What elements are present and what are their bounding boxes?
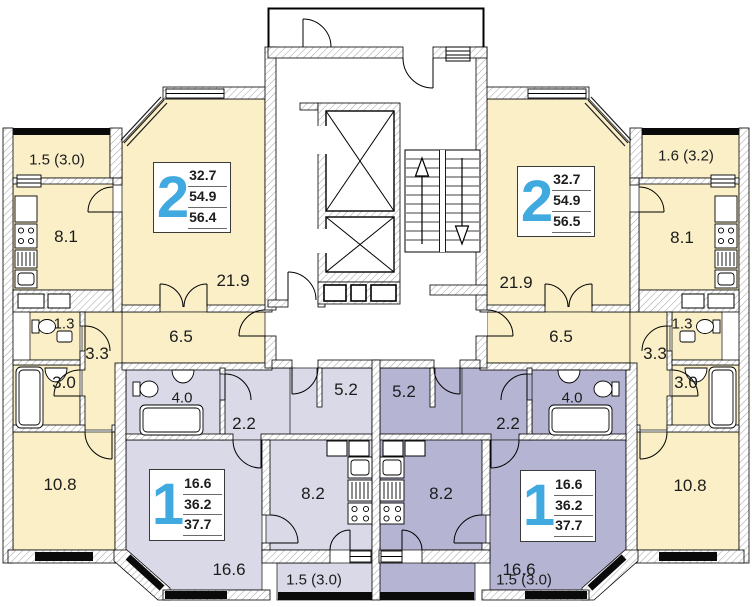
living-area-value: 16.6 xyxy=(183,474,222,495)
window-balcony-bottom-left xyxy=(278,592,372,600)
room-label-hall-1-right: 2.2 xyxy=(496,414,520,434)
room-label-kitchen-1-left: 8.2 xyxy=(301,484,325,504)
room-label-hall-1-left: 2.2 xyxy=(232,414,256,434)
room-label-living-1-left: 16.6 xyxy=(212,560,245,580)
apartment-areas: 16.6 36.2 37.7 xyxy=(183,474,222,537)
stove-icon xyxy=(715,224,737,248)
living-area-value: 16.6 xyxy=(554,475,593,496)
toilet-icon-wc-left xyxy=(32,320,56,334)
window-kitchen-1-right xyxy=(381,551,402,562)
kitchen-counter-1-left xyxy=(348,457,372,524)
apartment-number: 2 xyxy=(521,176,550,227)
total-area-value: 56.4 xyxy=(188,208,227,229)
usable-area-value: 54.9 xyxy=(552,191,591,212)
room-label-balcony-bottom-right: 1.5 (3.0) xyxy=(496,572,552,589)
apartment-areas: 32.7 54.9 56.5 xyxy=(552,170,591,233)
apartment-stamp-1-right: 1 16.6 36.2 37.7 xyxy=(520,470,596,542)
usable-area-value: 36.2 xyxy=(554,496,593,517)
room-label-bathroom-right: 3.0 xyxy=(674,373,698,393)
sink-icon-wc-right xyxy=(680,331,695,342)
total-area-value: 37.7 xyxy=(554,516,593,537)
kitchen-counter-1-right xyxy=(380,457,404,524)
elevator-door-2 xyxy=(317,229,327,253)
stove-icon xyxy=(15,224,37,248)
room-label-wc-right: 1.3 xyxy=(672,316,693,333)
window-bedroom-right xyxy=(659,552,717,561)
living-area-value: 32.7 xyxy=(552,170,591,191)
toilet-icon-wc-right xyxy=(697,320,721,334)
room-hallway-left xyxy=(122,312,265,363)
total-area-value: 56.5 xyxy=(552,212,591,233)
room-label-bedroom-left: 10.8 xyxy=(43,475,76,495)
stove-icon xyxy=(380,503,404,524)
room-label-kitchen-1-right: 8.2 xyxy=(429,484,453,504)
room-label-balcony-bottom-left: 1.5 (3.0) xyxy=(286,572,342,589)
window-balcony-top-left xyxy=(13,128,110,135)
bathtub-icon-right xyxy=(709,367,736,428)
elevator-door-1 xyxy=(317,126,327,154)
floor-plan: 1.5 (3.0) 8.1 21.9 6.5 1.3 3.3 3.0 10.8 … xyxy=(0,0,752,607)
living-area-value: 32.7 xyxy=(188,166,227,187)
apartment-areas: 16.6 36.2 37.7 xyxy=(554,475,593,538)
room-label-kitchen-right: 8.1 xyxy=(670,228,694,248)
window-living-1-left xyxy=(165,591,227,599)
apartment-number: 1 xyxy=(152,479,181,530)
room-label-bathroom-1-right: 4.0 xyxy=(562,390,583,407)
bathtub-icon-left xyxy=(16,367,43,428)
stove-icon xyxy=(348,503,372,524)
room-label-corridor-right: 3.3 xyxy=(643,344,667,364)
room-label-bathroom-left: 3.0 xyxy=(52,373,76,393)
apartment-stamp-2-left: 2 32.7 54.9 56.4 xyxy=(153,162,231,233)
room-label-corridor-1-right: 5.2 xyxy=(392,382,416,402)
room-label-wc-left: 1.3 xyxy=(54,316,75,333)
entrance-steps-icon xyxy=(446,47,470,61)
apartment-areas: 32.7 54.9 56.4 xyxy=(188,166,227,229)
room-label-hallway-right: 6.5 xyxy=(549,327,573,347)
total-area-value: 37.7 xyxy=(183,515,222,536)
apartment-number: 1 xyxy=(523,480,552,531)
window-balcony-top-right xyxy=(642,128,739,135)
window-living-2-right xyxy=(528,89,586,98)
room-label-living-2-right: 21.9 xyxy=(499,273,532,293)
room-corridor-1-left xyxy=(290,368,372,437)
window-living-2-left xyxy=(166,89,224,98)
window-kitchen-1-left xyxy=(350,551,371,562)
elevator-block xyxy=(317,111,396,301)
room-label-corridor-left: 3.3 xyxy=(85,344,109,364)
room-label-corridor-1-left: 5.2 xyxy=(334,380,358,400)
floor-plan-drawing xyxy=(0,0,752,607)
window-living-1-right xyxy=(525,591,587,599)
room-label-bedroom-right: 10.8 xyxy=(673,476,706,496)
room-corridor-1-right xyxy=(380,368,462,437)
usable-area-value: 36.2 xyxy=(183,495,222,516)
toilet-icon-bath1-left xyxy=(133,381,158,397)
kitchen-counter-left xyxy=(15,196,37,288)
window-bedroom-left xyxy=(35,552,93,561)
apartment-stamp-2-right: 2 32.7 54.9 56.5 xyxy=(517,166,595,237)
window-kitchen-balcony-right xyxy=(711,175,735,187)
room-label-hallway-left: 6.5 xyxy=(169,327,193,347)
staircase xyxy=(405,150,480,252)
door-porch xyxy=(303,19,331,47)
room-label-bathroom-1-left: 4.0 xyxy=(172,390,193,407)
window-balcony-bottom-right xyxy=(380,592,474,600)
sink-icon-wc-left xyxy=(57,331,72,342)
apartment-stamp-1-left: 1 16.6 36.2 37.7 xyxy=(149,469,225,541)
room-label-balcony-top-left: 1.5 (3.0) xyxy=(29,152,85,169)
bathtub-icon-bath1-right xyxy=(549,405,612,435)
room-label-living-2-left: 21.9 xyxy=(216,271,249,291)
room-label-balcony-top-right: 1.6 (3.2) xyxy=(658,148,714,165)
bathtub-icon-bath1-left xyxy=(140,405,203,435)
usable-area-value: 54.9 xyxy=(188,187,227,208)
room-label-kitchen-left: 8.1 xyxy=(54,227,78,247)
room-hall-1-right xyxy=(457,368,532,440)
kitchen-counter-right xyxy=(715,196,737,288)
toilet-icon-bath1-right xyxy=(594,381,619,397)
window-kitchen-balcony-left xyxy=(17,175,41,187)
service-ducts xyxy=(324,285,396,301)
apartment-number: 2 xyxy=(157,172,186,223)
